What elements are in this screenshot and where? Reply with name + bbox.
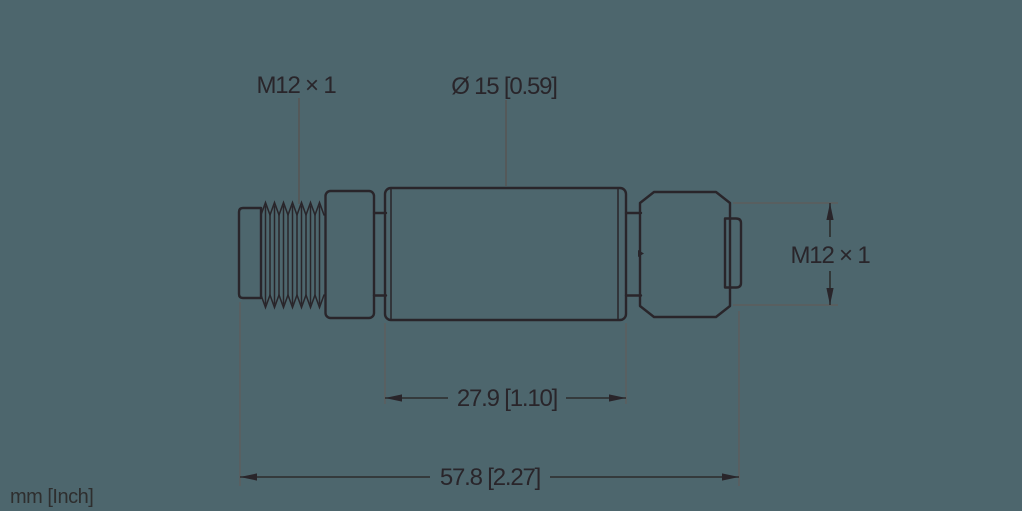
- right-coupling-cylinder: [725, 219, 741, 288]
- connector-body-group: [239, 188, 741, 320]
- drawing-canvas: M12 × 1 Ø 15 [0.59] M12 × 1 27.9 [1.10] …: [0, 0, 1022, 511]
- left-knurled-nut: [326, 191, 375, 318]
- label-thread-left: M12 × 1: [257, 72, 337, 99]
- dimension-text-body-length: 27.9 [1.10]: [457, 385, 557, 412]
- label-diameter: Ø 15 [0.59]: [451, 73, 557, 100]
- main-body-edge-lines: [391, 190, 618, 319]
- dimension-text-total-length: 57.8 [2.27]: [440, 464, 540, 491]
- label-thread-right: M12 × 1: [791, 242, 871, 269]
- male-thread-section: [261, 203, 324, 308]
- units-note: mm [Inch]: [10, 486, 93, 508]
- right-knurled-nut: [640, 192, 730, 317]
- left-end-cap: [239, 208, 261, 298]
- technical-drawing: M12 × 1 Ø 15 [0.59] M12 × 1 27.9 [1.10] …: [0, 0, 1022, 511]
- extension-lines: [240, 203, 838, 486]
- main-body: [385, 188, 626, 320]
